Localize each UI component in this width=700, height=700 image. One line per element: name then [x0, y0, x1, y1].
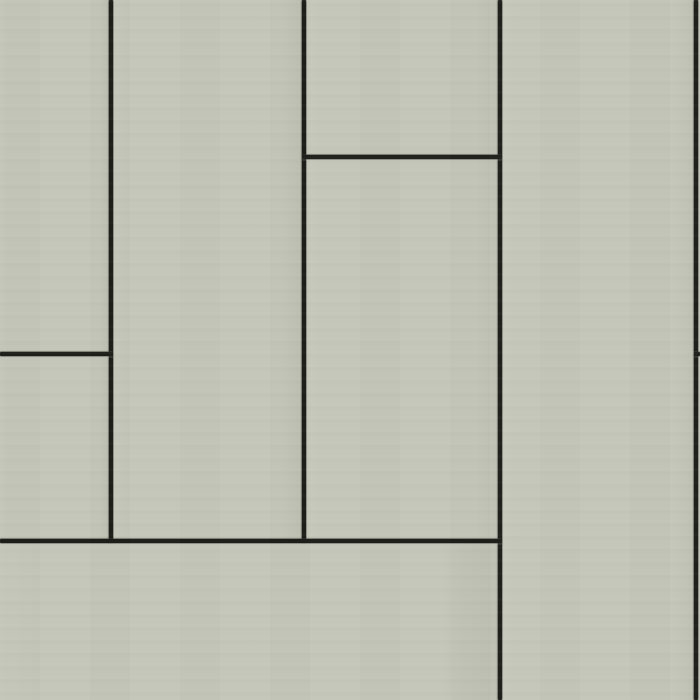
joint-v3 [498, 0, 502, 700]
panel-top-left [0, 0, 111, 354]
panel-column-2 [111, 0, 304, 541]
panel-mid-left [0, 354, 111, 541]
joint-h1 [302, 155, 502, 159]
joint-h3 [694, 352, 700, 356]
panel-column-3-main [304, 157, 500, 541]
joint-v1 [109, 0, 113, 543]
panel-bottom-strip [0, 541, 500, 700]
joint-v2 [302, 0, 306, 543]
joint-v4 [694, 0, 698, 700]
panel-column-3-top [304, 0, 500, 157]
joint-h4 [0, 539, 502, 543]
panel-column-4 [500, 0, 696, 700]
cladding-texture [0, 0, 700, 700]
joint-h2 [0, 352, 113, 356]
